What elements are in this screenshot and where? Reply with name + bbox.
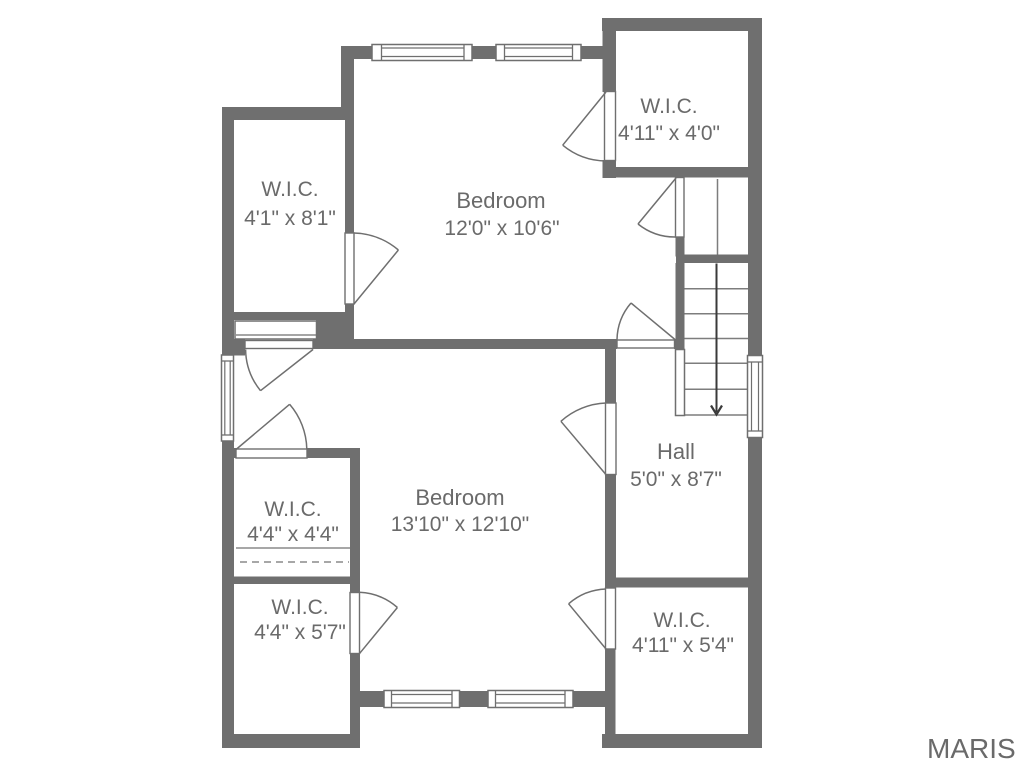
svg-text:5'0" x 8'7": 5'0" x 8'7" xyxy=(630,468,722,491)
svg-text:4'11" x 5'4": 4'11" x 5'4" xyxy=(632,634,734,657)
svg-text:13'10" x 12'10": 13'10" x 12'10" xyxy=(391,513,530,536)
svg-text:12'0" x 10'6": 12'0" x 10'6" xyxy=(444,217,559,240)
svg-text:W.I.C.: W.I.C. xyxy=(653,609,710,632)
svg-text:W.I.C.: W.I.C. xyxy=(640,95,697,118)
svg-text:Bedroom: Bedroom xyxy=(415,485,504,510)
svg-text:W.I.C.: W.I.C. xyxy=(271,596,328,619)
svg-text:W.I.C.: W.I.C. xyxy=(261,178,318,201)
svg-text:Bedroom: Bedroom xyxy=(456,188,545,213)
svg-text:4'11" x 4'0": 4'11" x 4'0" xyxy=(618,122,720,145)
svg-text:4'1" x 8'1": 4'1" x 8'1" xyxy=(244,207,336,230)
svg-text:Hall: Hall xyxy=(657,439,695,464)
svg-text:MARIS: MARIS xyxy=(927,733,1016,764)
svg-text:4'4" x 5'7": 4'4" x 5'7" xyxy=(254,621,346,644)
svg-text:W.I.C.: W.I.C. xyxy=(264,498,321,521)
svg-text:4'4" x 4'4": 4'4" x 4'4" xyxy=(247,523,339,546)
